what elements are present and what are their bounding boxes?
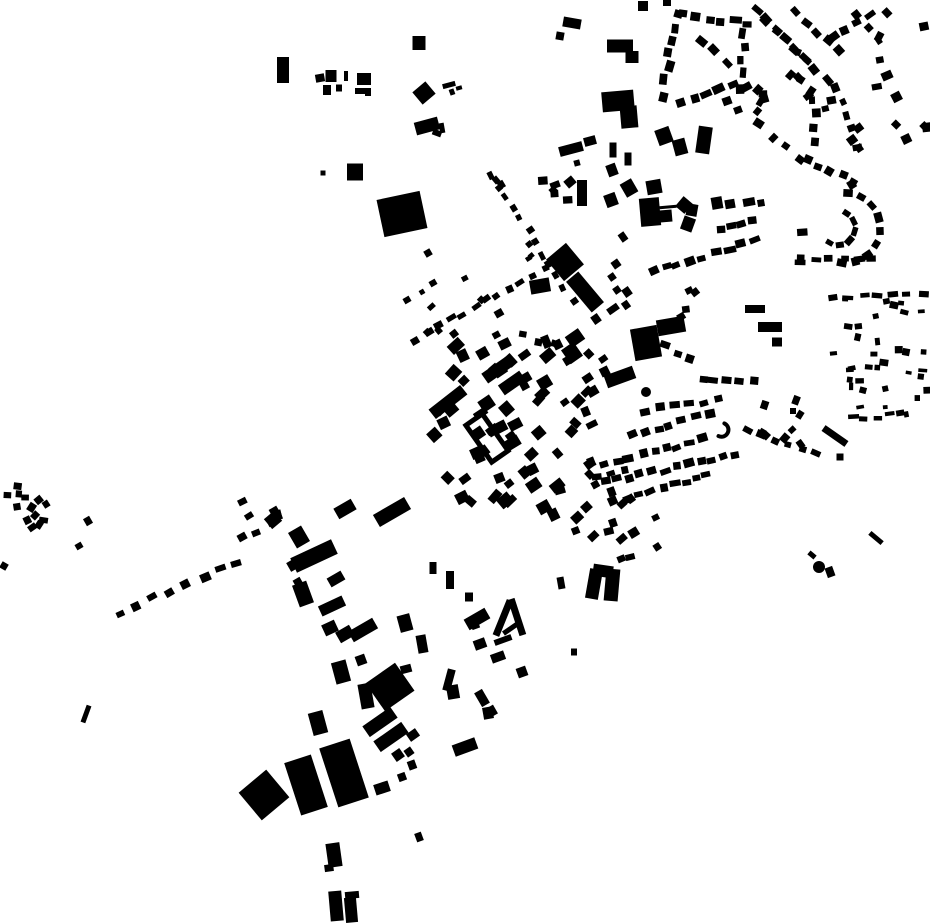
building-row-house: [704, 408, 716, 418]
building: [577, 180, 587, 206]
building-row-house: [811, 257, 821, 263]
building-cluster-house: [830, 351, 837, 356]
building: [400, 664, 413, 675]
building: [416, 634, 429, 653]
building-row-house: [716, 18, 725, 26]
building-loop-house: [825, 239, 834, 247]
building-row-house: [624, 474, 634, 484]
building-row-house: [797, 228, 808, 236]
building-row-house: [690, 411, 701, 420]
building: [465, 593, 473, 602]
building-cluster-house: [552, 447, 564, 459]
building: [573, 159, 580, 166]
building: [621, 286, 633, 298]
building: [410, 336, 420, 346]
building-cluster-house: [923, 387, 930, 394]
building-row-house: [696, 432, 708, 443]
building-row-house: [741, 43, 749, 52]
building-row-house: [752, 117, 765, 129]
building-row-house: [514, 278, 525, 287]
building-cluster-house: [458, 473, 471, 486]
building: [325, 842, 342, 868]
building-cluster-house: [571, 526, 581, 535]
building-cluster-house: [560, 397, 570, 407]
building-cluster-house: [918, 368, 927, 372]
building-row-house: [833, 44, 846, 57]
building-cluster-house: [922, 122, 930, 132]
building: [529, 277, 551, 294]
building: [414, 832, 424, 843]
building-row-house: [864, 9, 876, 20]
building: [604, 366, 637, 388]
building: [347, 164, 363, 181]
building: [620, 178, 639, 197]
building-row-house: [644, 486, 656, 496]
building: [319, 739, 369, 808]
building-loop-house: [876, 227, 884, 235]
building-cluster-house: [883, 405, 888, 409]
building-row-house: [684, 353, 695, 364]
building-row-house: [659, 73, 668, 85]
building: [757, 199, 765, 207]
building-row-house: [640, 427, 651, 438]
building-row-house: [214, 564, 226, 573]
building-row-house: [711, 247, 723, 256]
building-cluster-house: [607, 495, 619, 507]
building-row-house: [828, 294, 838, 301]
building-row-house: [660, 483, 669, 492]
building-cluster-house: [846, 367, 854, 372]
building-loop-house: [871, 239, 881, 249]
building-cluster-house: [900, 309, 909, 316]
building-cluster-house: [890, 91, 903, 104]
building: [571, 649, 577, 656]
building: [403, 746, 414, 757]
building-row-house: [737, 56, 743, 64]
building: [373, 780, 391, 795]
building-row-house: [667, 35, 676, 46]
building-row-house: [613, 457, 624, 465]
building: [742, 197, 755, 207]
building-row-house: [770, 436, 780, 445]
building-row-house: [809, 96, 815, 104]
building-cluster-house: [498, 400, 515, 417]
building: [825, 566, 836, 578]
building-row-house: [723, 245, 736, 254]
building-cluster-house: [497, 337, 512, 351]
building-row-house: [808, 64, 819, 75]
building: [656, 316, 686, 337]
building-cluster-house: [870, 352, 877, 357]
building: [663, 0, 671, 6]
building-cluster-house: [13, 482, 22, 490]
building-cluster-house: [608, 518, 618, 528]
building: [323, 85, 331, 95]
building: [605, 163, 619, 178]
building-row-house: [742, 21, 751, 27]
building-cluster-house: [581, 372, 594, 384]
building-row-house: [699, 399, 709, 407]
building-cluster-house: [875, 56, 884, 64]
building-cluster-house: [237, 497, 248, 507]
building-row-house: [848, 414, 859, 419]
building-row-house: [446, 313, 457, 323]
building-row-house: [801, 17, 813, 28]
building-row-house: [652, 447, 660, 455]
building-row-house: [768, 133, 778, 144]
building: [365, 88, 371, 96]
building-row-house: [634, 469, 644, 479]
building: [446, 684, 460, 700]
building-cluster-house: [436, 416, 451, 431]
building-cluster-house: [625, 553, 636, 561]
building-cluster-house: [880, 70, 893, 82]
building: [654, 126, 674, 146]
building-row-house: [683, 457, 696, 468]
building-row-house: [130, 601, 141, 612]
building-row-house: [707, 377, 718, 384]
building-row-house: [795, 154, 806, 165]
building-row-house: [779, 32, 792, 44]
building-row-house: [199, 571, 212, 583]
building-row-house: [655, 425, 665, 433]
building: [724, 199, 735, 210]
building-row-house: [670, 261, 680, 270]
building: [430, 562, 437, 574]
building-cluster-house: [900, 133, 912, 145]
building: [473, 637, 488, 651]
building-cluster-house: [587, 530, 600, 543]
building-row-house: [751, 4, 764, 16]
building: [516, 666, 529, 679]
building-cluster-house: [15, 490, 22, 497]
building-cluster-house: [507, 417, 523, 432]
building-cluster-house: [570, 510, 584, 524]
building-cluster-house: [603, 527, 614, 536]
building-row-house: [860, 293, 870, 298]
building: [413, 36, 426, 50]
building-cluster-house: [918, 309, 925, 313]
building-row-house: [864, 23, 874, 33]
building-row-house: [696, 255, 706, 263]
building-cluster-house: [525, 477, 543, 494]
building-cluster-house: [586, 419, 599, 430]
building-row-house: [706, 16, 715, 24]
building-row-house: [601, 476, 612, 485]
building: [618, 231, 629, 242]
building-row-house: [690, 12, 701, 22]
building-cluster-house: [846, 134, 858, 146]
building-row-house: [812, 108, 821, 117]
building: [391, 748, 405, 762]
building-cluster-house: [539, 347, 556, 364]
map-svg: [0, 0, 930, 924]
building: [81, 705, 92, 724]
building-row-house: [721, 376, 732, 384]
building-row-house: [526, 225, 536, 234]
building-row-house: [633, 491, 643, 499]
building: [277, 57, 289, 83]
building-cluster-house: [871, 83, 882, 91]
building: [407, 759, 418, 770]
building-row-house: [627, 429, 639, 440]
building-cluster-house: [856, 405, 864, 410]
building-row-house: [639, 408, 650, 417]
building-row-house: [659, 340, 671, 350]
building: [333, 499, 356, 519]
building-cluster-house: [475, 346, 490, 361]
crescent-building: [719, 423, 729, 436]
building: [377, 191, 428, 237]
building: [807, 551, 816, 560]
building-row-house: [230, 559, 242, 568]
building-row-house: [730, 451, 739, 459]
building-cluster-house: [826, 96, 836, 105]
building-row-house: [747, 216, 757, 224]
building-cluster-house: [652, 542, 662, 552]
building-row-house: [902, 292, 910, 297]
building-row-house: [673, 462, 681, 470]
building-cluster-house: [847, 376, 853, 382]
building-cluster-house: [905, 371, 911, 375]
building-row-house: [558, 284, 566, 293]
building: [612, 285, 622, 295]
building-row-house: [842, 295, 853, 300]
building-row-house: [896, 409, 905, 416]
building-cluster-house: [917, 373, 924, 380]
building-cluster-house: [616, 533, 628, 545]
building-cluster-house: [524, 447, 539, 462]
building: [446, 571, 454, 589]
building-row-house: [673, 350, 682, 358]
building-row-house: [707, 43, 720, 56]
building-cluster-house: [889, 301, 899, 310]
building-row-house: [146, 592, 157, 602]
building-cluster-house: [872, 313, 879, 319]
building-row-house: [749, 235, 761, 244]
building-row-house: [740, 67, 747, 78]
building-row-house: [810, 448, 821, 457]
building-cluster-house: [616, 554, 626, 563]
building: [315, 73, 325, 82]
building-row-house: [824, 255, 833, 262]
building-row-house: [839, 170, 849, 180]
building-row-house: [501, 192, 509, 201]
building-row-house: [738, 28, 746, 40]
building-row-house: [726, 222, 737, 230]
building-cluster-house: [563, 196, 573, 204]
building-row-house: [750, 376, 759, 385]
building-row-house: [639, 448, 649, 458]
building-row-house: [885, 411, 895, 416]
building-row-house: [519, 331, 527, 338]
building-row-house: [671, 444, 681, 453]
building-row-house: [662, 262, 672, 270]
building-cluster-house: [753, 106, 763, 116]
building: [607, 40, 633, 53]
building-row-house: [115, 610, 125, 619]
building-cluster-house: [21, 495, 29, 501]
building-cluster-house: [874, 365, 880, 371]
building-row-house: [699, 376, 708, 383]
building: [419, 289, 426, 296]
building: [745, 305, 765, 313]
building-row-house: [669, 401, 680, 409]
building-row-house: [851, 17, 862, 27]
building-row-house: [663, 47, 672, 57]
building-row-house: [788, 425, 797, 434]
building: [494, 634, 513, 646]
building-row-house: [887, 291, 898, 298]
round-building: [641, 387, 651, 397]
building-row-house: [251, 528, 261, 537]
building: [603, 192, 619, 208]
building-row-house: [699, 89, 712, 100]
building: [239, 770, 290, 821]
building: [308, 710, 328, 736]
building-row-house: [599, 460, 609, 469]
building-row-house: [697, 457, 707, 466]
building-loop-house: [835, 241, 844, 248]
building-cluster-house: [919, 21, 930, 31]
building-cluster-house: [891, 119, 901, 129]
building-loop-house: [849, 216, 858, 226]
building: [412, 81, 435, 104]
building-row-house: [811, 137, 820, 146]
building: [837, 454, 844, 461]
building-cluster-house: [13, 503, 21, 511]
building-cluster-house: [583, 348, 595, 360]
building-cluster-house: [580, 501, 593, 514]
building-row-house: [684, 439, 695, 446]
building-cluster-house: [883, 298, 891, 305]
building: [490, 650, 506, 663]
building-row-house: [648, 265, 660, 276]
building: [482, 706, 494, 720]
building-loop-house: [856, 192, 867, 202]
building-cluster-house: [854, 333, 862, 342]
building: [868, 531, 883, 545]
building-cluster-house: [441, 471, 455, 485]
building-row-house: [842, 111, 850, 121]
building: [659, 209, 672, 222]
building-cluster-house: [458, 375, 470, 387]
building: [397, 772, 407, 782]
building-row-house: [655, 402, 665, 411]
building-cluster-house: [531, 425, 547, 441]
building-row-house: [781, 141, 791, 150]
building-cluster-house: [493, 472, 505, 484]
building: [74, 542, 83, 551]
building: [442, 81, 456, 89]
building: [583, 135, 597, 147]
building-row-house: [646, 466, 657, 476]
building: [758, 322, 782, 332]
building-row-house: [528, 272, 537, 280]
building: [318, 596, 346, 617]
building: [626, 51, 639, 63]
building-row-house: [919, 291, 929, 298]
building-row-house: [839, 98, 847, 106]
building: [336, 85, 342, 92]
building-cluster-house: [855, 378, 864, 383]
building: [621, 300, 631, 311]
building-cluster-house: [492, 330, 502, 339]
building-row-house: [570, 297, 579, 306]
building: [555, 31, 564, 40]
building: [695, 126, 713, 155]
building-cluster-house: [426, 427, 442, 443]
building-row-house: [591, 473, 601, 480]
building-cluster-house: [494, 308, 505, 319]
building: [607, 272, 617, 282]
building-row-house: [692, 474, 701, 481]
building-row-house: [675, 97, 686, 108]
building-loop-house: [844, 235, 855, 247]
building-row-house: [662, 443, 672, 452]
building-row-house: [515, 214, 522, 222]
building-cluster-house: [865, 364, 873, 370]
building-row-house: [534, 338, 543, 347]
building-row-house: [790, 6, 801, 17]
building: [449, 88, 456, 95]
building: [288, 525, 310, 548]
building-cluster-house: [590, 480, 600, 490]
building-row-house: [622, 454, 634, 464]
building: [590, 313, 602, 325]
building: [83, 516, 93, 526]
building: [566, 272, 604, 313]
building: [355, 88, 365, 94]
building-row-house: [695, 35, 708, 48]
building: [562, 17, 581, 30]
building-cluster-house: [427, 302, 436, 311]
building-cluster-house: [849, 383, 853, 391]
building: [502, 622, 518, 635]
building-row-house: [839, 25, 850, 36]
building: [324, 864, 334, 872]
building-row-house: [809, 123, 818, 132]
building-loop-house: [866, 200, 877, 211]
building: [456, 85, 463, 90]
building-row-house: [871, 292, 882, 298]
building-loop-house: [842, 209, 852, 218]
building: [373, 497, 411, 527]
building-row-house: [734, 377, 744, 385]
building-cluster-house: [915, 395, 920, 401]
building: [284, 755, 328, 816]
building: [357, 73, 371, 85]
building-row-house: [859, 416, 868, 421]
building: [452, 737, 479, 756]
building: [680, 215, 696, 232]
building-row-house: [671, 24, 679, 34]
building-row-house: [797, 254, 805, 260]
round-building: [813, 561, 825, 573]
building: [331, 659, 351, 684]
building: [557, 576, 566, 589]
building-row-house: [683, 400, 694, 407]
building-cluster-house: [651, 513, 660, 521]
building-row-house: [471, 302, 481, 311]
building-row-house: [236, 532, 247, 543]
building: [565, 328, 586, 348]
building-cluster-house: [3, 492, 11, 498]
building-row-house: [424, 327, 435, 337]
building-cluster-house: [627, 526, 640, 539]
building-row-house: [682, 479, 692, 486]
building-cluster-house: [791, 395, 801, 406]
